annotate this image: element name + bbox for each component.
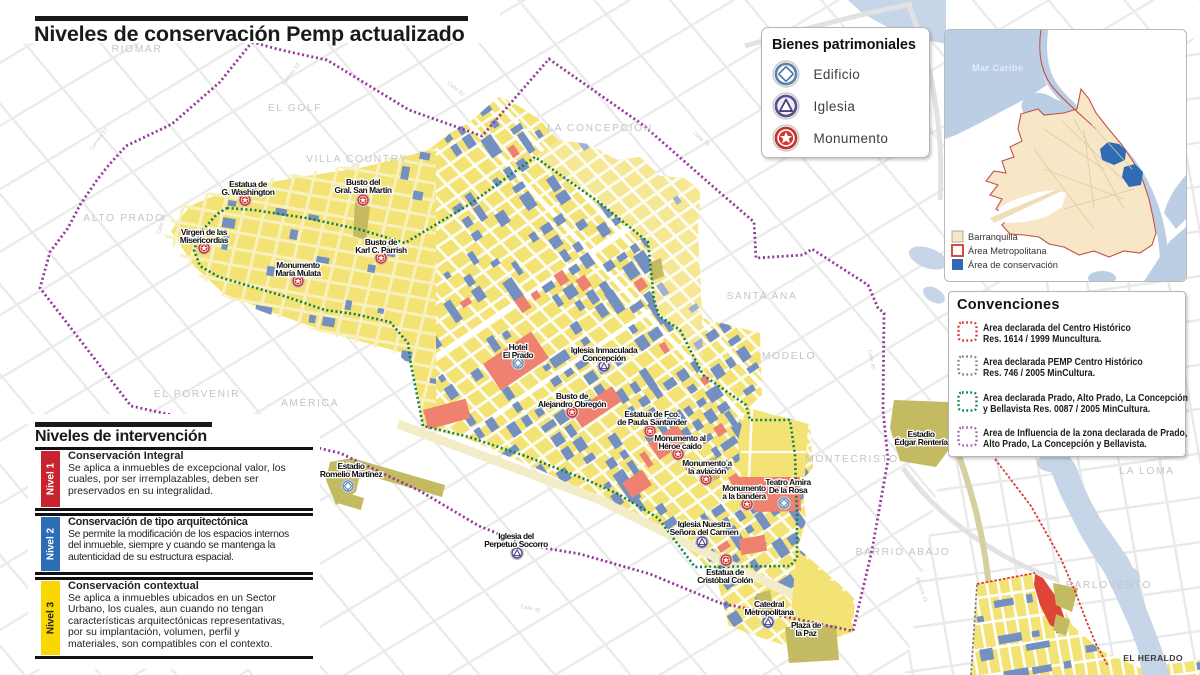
svg-text:Estatua de Fco.de Paula Santan: Estatua de Fco.de Paula Santander xyxy=(617,409,688,427)
svg-text:Mar Caribe: Mar Caribe xyxy=(972,63,1024,73)
svg-text:Teatro AmiraDe la Rosa: Teatro AmiraDe la Rosa xyxy=(765,477,811,495)
svg-text:LA CONCEPCIÓN: LA CONCEPCIÓN xyxy=(547,121,652,134)
svg-text:EL PORVENIR: EL PORVENIR xyxy=(154,389,240,400)
svg-text:EL HERALDO: EL HERALDO xyxy=(1123,653,1183,663)
svg-text:AMÉRICA: AMÉRICA xyxy=(281,396,339,409)
svg-text:Monumentoa la bandera: Monumentoa la bandera xyxy=(722,483,766,501)
svg-text:Monumento alHéroe caído: Monumento alHéroe caído xyxy=(654,433,705,451)
svg-text:Monumento ala aviación: Monumento ala aviación xyxy=(682,458,732,476)
svg-text:SANTA ANA: SANTA ANA xyxy=(727,291,798,302)
svg-text:Virgen de lasMisericordias: Virgen de lasMisericordias xyxy=(180,227,229,245)
svg-text:BARRIO ABAJO: BARRIO ABAJO xyxy=(856,547,951,558)
svg-text:ALTO PRADO: ALTO PRADO xyxy=(83,213,164,224)
svg-text:MODELO: MODELO xyxy=(762,351,816,362)
svg-text:Barranquilla: Barranquilla xyxy=(968,232,1018,242)
svg-text:Área Metropolitana: Área Metropolitana xyxy=(968,246,1047,256)
svg-text:MONTECRISTO: MONTECRISTO xyxy=(805,454,899,465)
svg-text:MonumentoMaría Mulata: MonumentoMaría Mulata xyxy=(275,260,321,278)
svg-text:EL GOLF: EL GOLF xyxy=(268,103,322,114)
svg-text:Iglesia NuestraSeñora del Carm: Iglesia NuestraSeñora del Carmen xyxy=(670,519,739,537)
svg-text:LA LOMA: LA LOMA xyxy=(1119,466,1174,477)
svg-text:BARLOVENTO: BARLOVENTO xyxy=(1066,580,1152,591)
svg-text:Área de conservación: Área de conservación xyxy=(968,260,1058,270)
svg-text:Estatua deG. Washington: Estatua deG. Washington xyxy=(222,179,275,197)
svg-text:VILLA COUNTRY: VILLA COUNTRY xyxy=(306,154,408,165)
